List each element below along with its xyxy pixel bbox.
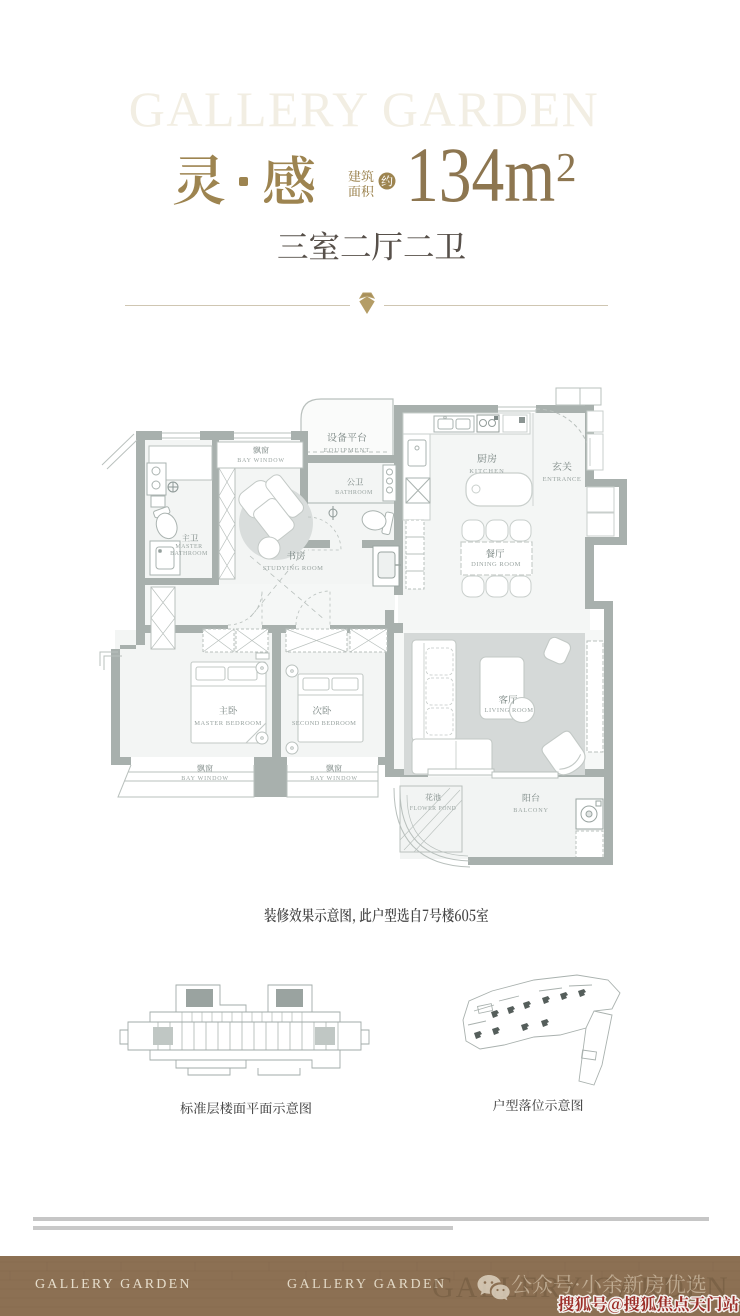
svg-text:MASTER BEDROOM: MASTER BEDROOM [194, 720, 262, 727]
svg-text:DINING ROOM: DINING ROOM [471, 561, 521, 568]
svg-text:BAY WINDOW: BAY WINDOW [181, 776, 229, 782]
svg-text:EQUIPMENT: EQUIPMENT [324, 447, 371, 454]
svg-text:ENTRANCE: ENTRANCE [543, 476, 582, 483]
svg-text:LIVING ROOM: LIVING ROOM [484, 707, 533, 714]
svg-text:SECOND BEDROOM: SECOND BEDROOM [292, 720, 356, 727]
svg-text:GALLERY GARDEN: GALLERY GARDEN [35, 1277, 192, 1292]
svg-text:STUDYING ROOM: STUDYING ROOM [263, 565, 324, 572]
svg-text:134m: 134m [406, 132, 555, 219]
svg-text:BALCONY: BALCONY [513, 807, 549, 814]
svg-text:MASTER: MASTER [175, 544, 202, 550]
svg-text:2: 2 [556, 144, 577, 190]
svg-text:BATHROOM: BATHROOM [170, 551, 208, 557]
svg-text:KITCHEN: KITCHEN [469, 468, 505, 475]
svg-text:GALLERY GARDEN: GALLERY GARDEN [129, 81, 600, 137]
svg-text:FLOWER POND: FLOWER POND [410, 806, 457, 812]
svg-text:BATHROOM: BATHROOM [335, 490, 373, 496]
svg-text:BAY WINDOW: BAY WINDOW [310, 776, 358, 782]
svg-text:GALLERY GARDEN: GALLERY GARDEN [287, 1277, 446, 1292]
svg-text:BAY WINDOW: BAY WINDOW [237, 458, 285, 464]
